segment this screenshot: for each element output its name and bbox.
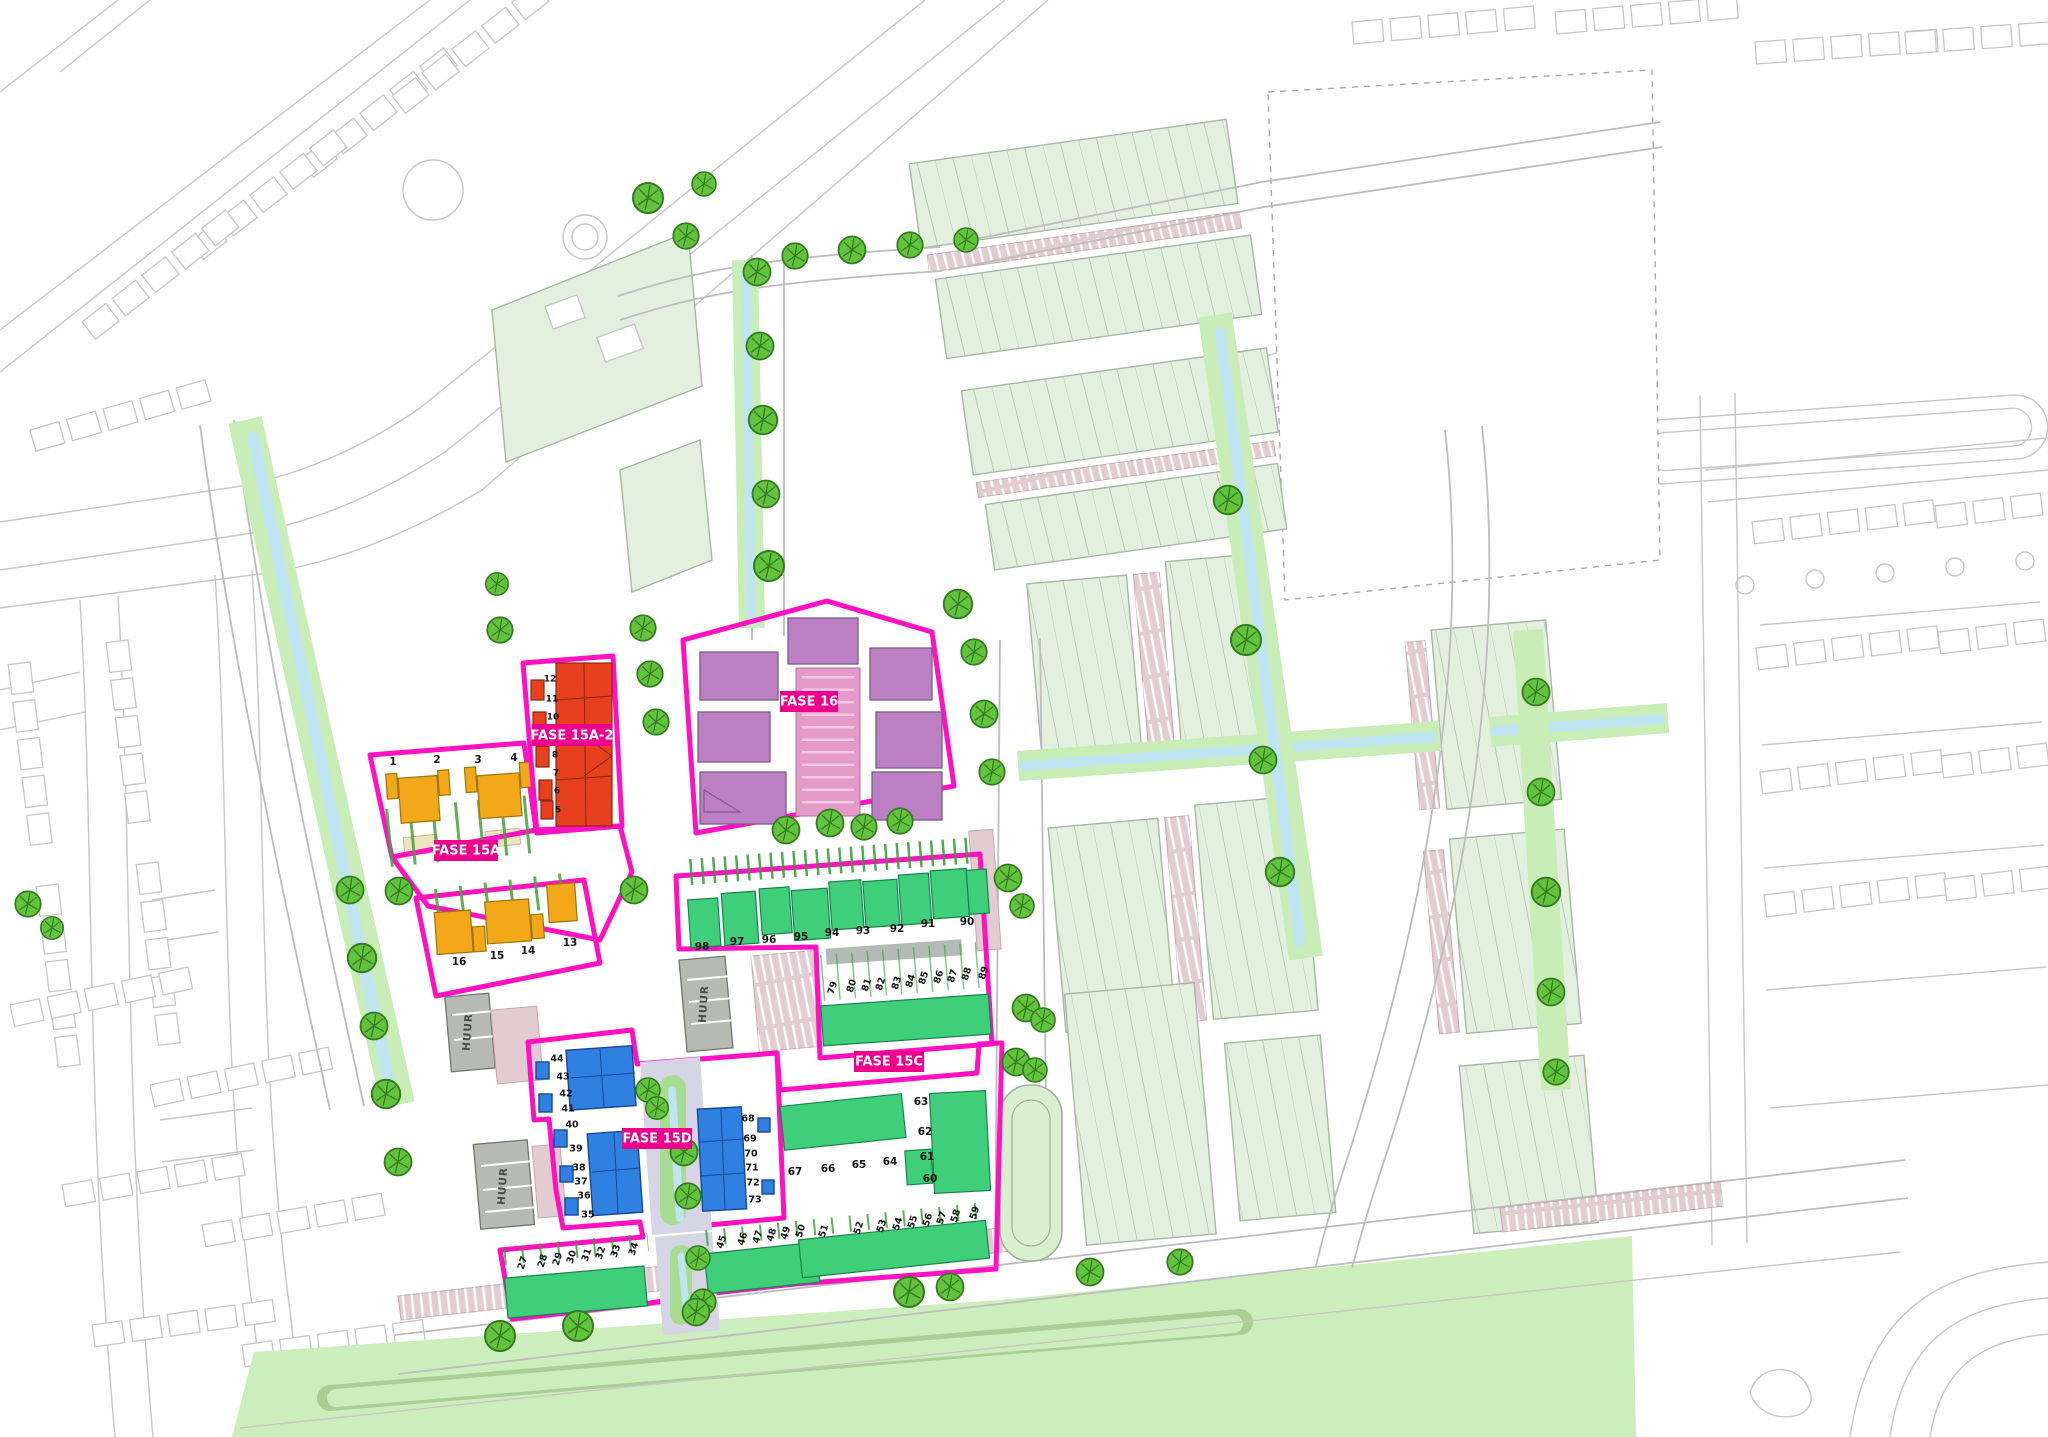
- lot-number: 65: [852, 1159, 867, 1171]
- lot-number: 96: [762, 934, 777, 946]
- lot-number: 41: [561, 1104, 574, 1115]
- lot-number: 38: [572, 1163, 586, 1174]
- lot-number: 12: [544, 675, 557, 685]
- lot-number: 49: [779, 1225, 794, 1241]
- lot-number: 67: [788, 1166, 803, 1178]
- lot-number: 2: [433, 754, 440, 766]
- lot-number: 15: [490, 950, 505, 962]
- lot-number: 72: [746, 1178, 759, 1189]
- lot-number: 63: [914, 1096, 929, 1108]
- phase-label-fase15d: FASE 15D: [622, 1132, 691, 1147]
- lot-number: 29: [551, 1251, 566, 1267]
- lot-number: 86: [932, 969, 947, 985]
- lot-number: 87: [946, 968, 961, 984]
- phase-label-fase15a: FASE 15A: [432, 844, 500, 859]
- lot-number: 32: [594, 1245, 609, 1261]
- lot-number: 8: [552, 751, 558, 761]
- lot-number: 14: [521, 945, 536, 957]
- lot-number: 95: [794, 931, 809, 943]
- lot-number: 47: [751, 1229, 766, 1245]
- lot-number: 28: [536, 1253, 551, 1269]
- lot-number: 92: [890, 923, 905, 935]
- phase-label-fase16: FASE 16: [780, 695, 838, 710]
- lot-number: 44: [550, 1054, 564, 1065]
- lot-number: 81: [860, 977, 875, 993]
- lot-number: 13: [563, 937, 578, 949]
- lot-number: 61: [920, 1151, 935, 1163]
- lot-number: 36: [577, 1191, 591, 1202]
- phase-label-fase15c: FASE 15C: [855, 1055, 923, 1070]
- lot-number: 7: [553, 769, 559, 779]
- lot-number: 57: [935, 1210, 950, 1226]
- lot-number: 59: [968, 1205, 983, 1221]
- phase-label-fase15a2: FASE 15A-2: [531, 729, 614, 744]
- site-plan-canvas: 1234 16151413 1211108765 HUUR HUUR HUUR: [0, 0, 2048, 1437]
- lot-number: 98: [695, 941, 710, 953]
- lot-number: 48: [765, 1227, 780, 1243]
- lot-number: 73: [748, 1195, 761, 1206]
- lot-number: 85: [917, 970, 932, 986]
- lot-number: 93: [856, 925, 871, 937]
- lot-number: 35: [581, 1210, 594, 1221]
- lot-number: 97: [730, 936, 745, 948]
- lot-number: 64: [883, 1156, 898, 1168]
- lot-number: 71: [745, 1163, 758, 1174]
- lot-number: 66: [821, 1163, 836, 1175]
- phase-area-fase15d-south: 44434241403938373635 686970717273 676665…: [500, 1030, 1002, 1335]
- phase-area-fase16: [683, 601, 954, 833]
- lot-number: 43: [556, 1072, 569, 1083]
- green-belt: [232, 1236, 1900, 1437]
- lot-number: 60: [923, 1173, 938, 1185]
- lot-number: 45: [715, 1234, 730, 1250]
- lot-number: 46: [736, 1231, 751, 1247]
- lot-number: 42: [559, 1089, 572, 1100]
- lot-number: 33: [609, 1243, 624, 1259]
- lot-number: 39: [569, 1144, 582, 1155]
- lot-number: 1: [389, 756, 396, 768]
- lot-number: 91: [921, 918, 936, 930]
- site-plan-drawing: 1234 16151413 1211108765 HUUR HUUR HUUR: [0, 0, 2048, 1437]
- lot-number: 34: [627, 1241, 642, 1257]
- lot-number: 11: [546, 695, 559, 705]
- lot-number: 40: [565, 1120, 579, 1131]
- lot-number: 70: [744, 1149, 758, 1160]
- lot-number: 80: [845, 978, 860, 994]
- lot-number: 27: [516, 1255, 531, 1271]
- lot-number: 3: [474, 754, 481, 766]
- lot-number: 5: [555, 806, 561, 816]
- lot-number: 58: [949, 1208, 964, 1224]
- lot-number: 69: [743, 1134, 756, 1145]
- lot-number: 68: [741, 1114, 755, 1125]
- lot-number: 62: [918, 1126, 933, 1138]
- lot-number: 31: [580, 1247, 595, 1263]
- lot-number: 16: [452, 956, 467, 968]
- lot-number: 10: [547, 713, 560, 723]
- lot-number: 6: [554, 787, 560, 797]
- lot-number: 4: [510, 752, 517, 764]
- lot-numbers-fase15c-mid: 7980818283848586878889: [826, 965, 992, 996]
- lot-number: 94: [825, 927, 840, 939]
- lot-number: 37: [574, 1177, 587, 1188]
- lot-number: 90: [960, 916, 975, 928]
